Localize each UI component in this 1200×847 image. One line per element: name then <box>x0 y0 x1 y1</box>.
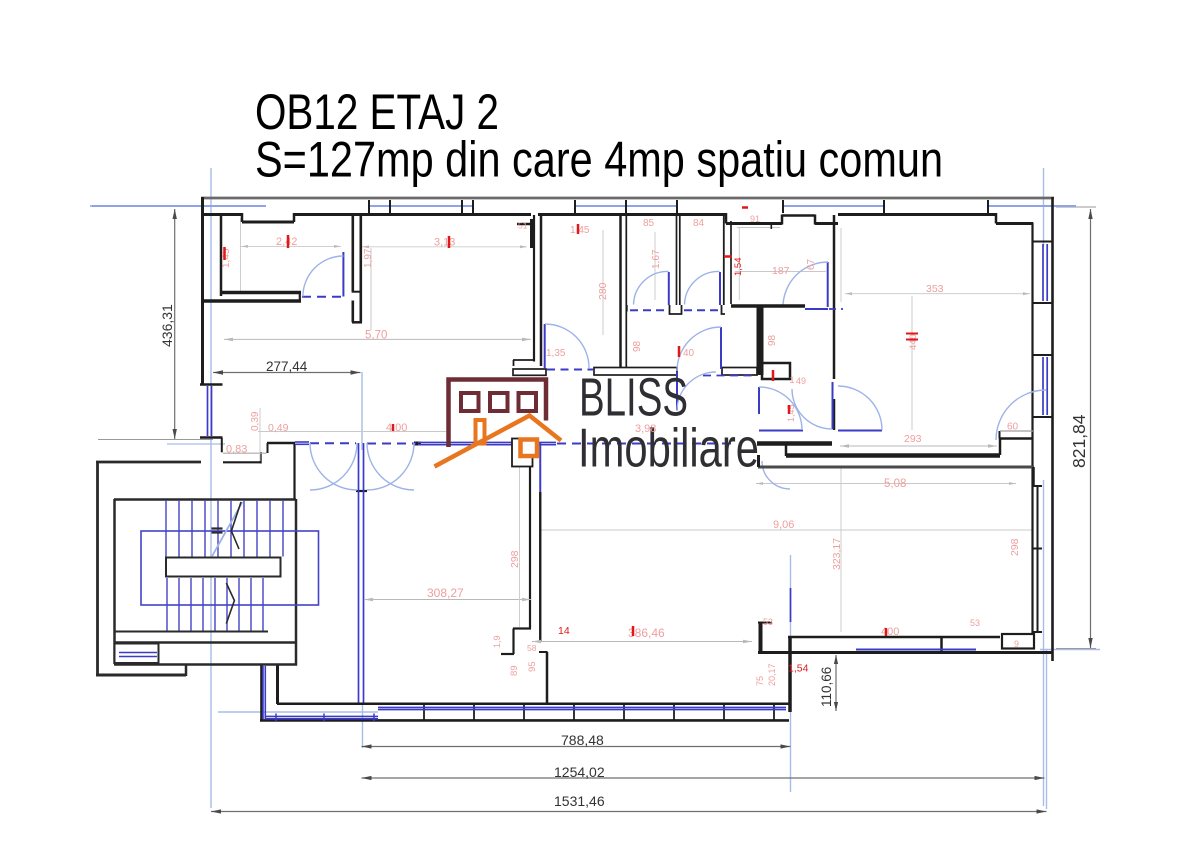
svg-text:293: 293 <box>904 433 922 445</box>
svg-text:58: 58 <box>527 643 537 653</box>
svg-text:110,66: 110,66 <box>819 667 834 707</box>
svg-text:9: 9 <box>1014 639 1019 649</box>
svg-text:821,84: 821,84 <box>1069 414 1089 468</box>
svg-text:1,97: 1,97 <box>363 248 374 268</box>
svg-text:98: 98 <box>632 340 643 352</box>
svg-text:1254,02: 1254,02 <box>554 764 605 780</box>
svg-text:51: 51 <box>518 221 528 231</box>
svg-text:3,13: 3,13 <box>434 237 455 249</box>
svg-text:1,54: 1,54 <box>788 663 809 675</box>
svg-text:0,49: 0,49 <box>268 422 289 434</box>
svg-text:1,45: 1,45 <box>786 404 796 422</box>
svg-text:Imobiliare: Imobiliare <box>578 417 759 479</box>
svg-text:S=127mp din care 4mp spatiu co: S=127mp din care 4mp spatiu comun <box>255 132 943 188</box>
svg-text:298: 298 <box>509 550 521 568</box>
svg-text:1,54: 1,54 <box>733 258 744 277</box>
svg-text:277,44: 277,44 <box>266 359 308 374</box>
svg-text:280: 280 <box>597 282 609 300</box>
svg-text:440: 440 <box>908 334 919 350</box>
svg-text:1: 1 <box>790 375 795 385</box>
svg-text:5,70: 5,70 <box>365 330 387 342</box>
svg-text:3,98: 3,98 <box>635 423 656 435</box>
svg-text:436,31: 436,31 <box>159 304 175 347</box>
svg-text:187: 187 <box>772 265 790 277</box>
svg-text:323,17: 323,17 <box>831 538 843 570</box>
svg-text:49: 49 <box>796 376 806 386</box>
svg-text:85: 85 <box>643 218 655 229</box>
svg-text:20,17: 20,17 <box>767 663 777 686</box>
svg-text:75: 75 <box>755 676 765 686</box>
svg-text:4,00: 4,00 <box>386 422 407 434</box>
svg-text:1 45: 1 45 <box>570 225 590 236</box>
svg-text:788,48: 788,48 <box>561 732 604 748</box>
svg-text:98: 98 <box>767 334 778 346</box>
svg-text:400: 400 <box>881 626 899 638</box>
svg-text:9,06: 9,06 <box>773 519 794 531</box>
svg-text:298: 298 <box>1009 538 1021 556</box>
svg-text:1,35: 1,35 <box>546 348 566 359</box>
svg-text:5,08: 5,08 <box>884 478 906 490</box>
svg-text:0,39: 0,39 <box>250 411 261 431</box>
svg-text:60: 60 <box>1007 422 1019 433</box>
svg-text:91: 91 <box>750 214 760 224</box>
svg-text:353: 353 <box>926 283 944 295</box>
svg-text:308,27: 308,27 <box>427 586 464 600</box>
svg-text:1,45: 1,45 <box>221 248 232 268</box>
svg-text:1,9: 1,9 <box>492 635 502 648</box>
svg-text:14: 14 <box>558 625 570 637</box>
svg-text:95: 95 <box>527 661 538 672</box>
svg-text:1,67: 1,67 <box>651 249 662 269</box>
svg-text:84: 84 <box>693 218 705 229</box>
svg-text:1531,46: 1531,46 <box>554 793 605 809</box>
svg-text:53: 53 <box>763 617 773 627</box>
svg-text:89: 89 <box>509 665 520 676</box>
svg-text:40: 40 <box>683 348 695 359</box>
svg-text:2,42: 2,42 <box>276 236 297 248</box>
svg-text:67: 67 <box>806 258 817 270</box>
svg-text:53: 53 <box>970 618 980 628</box>
svg-text:0,83: 0,83 <box>226 444 247 456</box>
